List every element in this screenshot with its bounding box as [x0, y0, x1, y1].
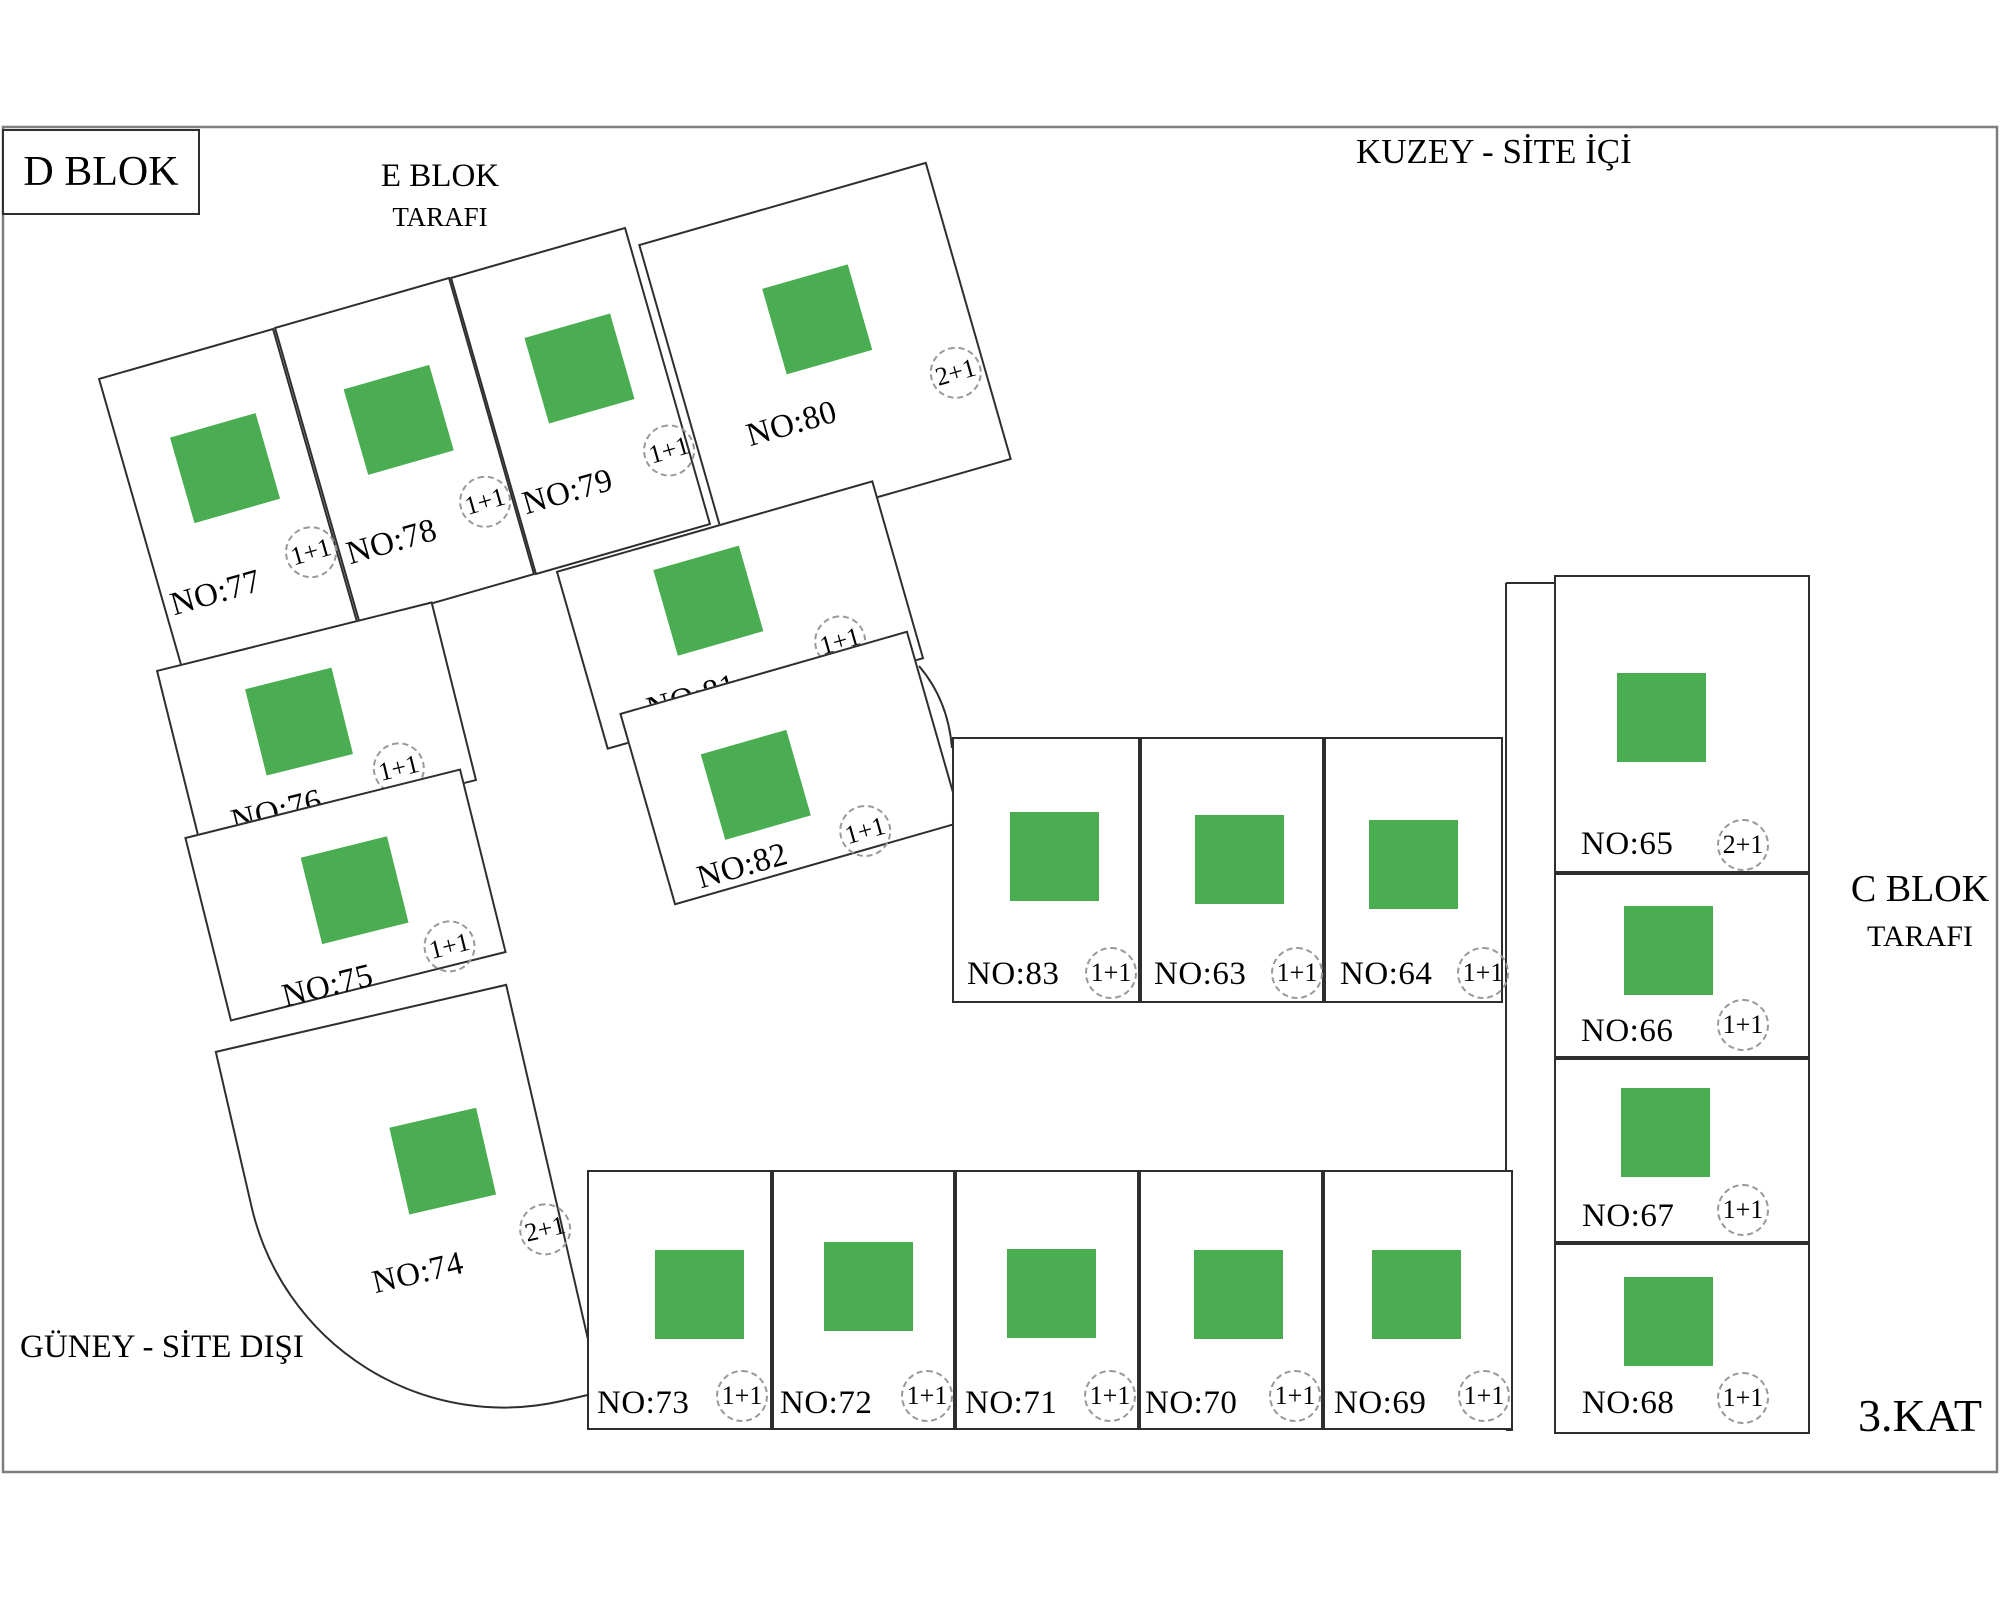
unit-availability-square: [389, 1108, 496, 1215]
c-block-line1: C BLOK: [1840, 868, 2000, 912]
unit-availability-square: [300, 836, 408, 944]
unit-type-badge: 1+1: [1458, 1370, 1510, 1422]
unit-availability-square: [701, 730, 811, 840]
d-block-label-box: D BLOK: [2, 129, 200, 215]
unit-no-73[interactable]: NO:731+1: [587, 1170, 772, 1430]
unit-availability-square: [1624, 1277, 1713, 1366]
floor-label: 3.KAT: [1858, 1390, 1982, 1443]
unit-type-badge: 1+1: [716, 1370, 768, 1422]
unit-no-72[interactable]: NO:721+1: [772, 1170, 955, 1430]
unit-number-label: NO:68: [1582, 1387, 1674, 1420]
e-block-label: E BLOK TARAFI: [340, 158, 540, 233]
unit-no-71[interactable]: NO:711+1: [955, 1170, 1139, 1430]
unit-no-70[interactable]: NO:701+1: [1139, 1170, 1323, 1430]
unit-number-label: NO:69: [1334, 1387, 1426, 1420]
unit-availability-square: [343, 365, 453, 475]
unit-number-label: NO:75: [278, 959, 376, 1013]
unit-no-74[interactable]: NO:742+1: [215, 984, 602, 1461]
unit-availability-square: [1621, 1088, 1710, 1177]
unit-no-63[interactable]: NO:631+1: [1140, 737, 1324, 1003]
unit-availability-square: [1194, 1250, 1283, 1339]
unit-type-badge: 1+1: [1084, 1370, 1136, 1422]
unit-number-label: NO:82: [694, 838, 792, 895]
unit-number-label: NO:72: [780, 1387, 872, 1420]
unit-number-label: NO:71: [965, 1387, 1057, 1420]
unit-number-label: NO:74: [369, 1247, 466, 1300]
unit-number-label: NO:73: [597, 1387, 689, 1420]
unit-type-badge: 1+1: [1457, 947, 1509, 999]
unit-no-66[interactable]: NO:661+1: [1554, 873, 1810, 1058]
service-strip-lines: [1506, 583, 1554, 1430]
unit-no-64[interactable]: NO:641+1: [1324, 737, 1503, 1003]
unit-availability-square: [1010, 812, 1099, 901]
unit-type-badge: 2+1: [514, 1198, 576, 1260]
unit-availability-square: [1624, 906, 1713, 995]
unit-availability-square: [245, 667, 353, 775]
unit-no-69[interactable]: NO:691+1: [1323, 1170, 1513, 1430]
unit-no-68[interactable]: NO:681+1: [1554, 1243, 1810, 1434]
unit-availability-square: [1007, 1249, 1096, 1338]
c-block-line2: TARAFI: [1840, 920, 2000, 955]
unit-number-label: NO:77: [166, 565, 264, 622]
unit-availability-square: [655, 1250, 744, 1339]
unit-number-label: NO:79: [518, 464, 616, 521]
south-side-label: GÜNEY - SİTE DIŞI: [20, 1329, 304, 1367]
unit-type-badge: 1+1: [417, 915, 480, 978]
unit-no-65[interactable]: NO:652+1: [1554, 575, 1810, 873]
unit-type-badge: 1+1: [1085, 947, 1137, 999]
e-block-line1: E BLOK: [340, 158, 540, 196]
unit-number-label: NO:63: [1154, 958, 1246, 991]
unit-type-badge: 2+1: [924, 341, 988, 405]
unit-availability-square: [824, 1242, 913, 1331]
unit-availability-square: [169, 413, 279, 523]
unit-type-badge: 1+1: [1717, 999, 1769, 1051]
unit-type-badge: 2+1: [1717, 819, 1769, 871]
unit-number-label: NO:80: [743, 396, 841, 453]
unit-no-83[interactable]: NO:831+1: [952, 737, 1140, 1003]
c-block-label: C BLOK TARAFI: [1840, 868, 2000, 954]
unit-no-67[interactable]: NO:671+1: [1554, 1058, 1810, 1243]
unit-type-badge: 1+1: [1717, 1184, 1769, 1236]
unit-number-label: NO:83: [967, 958, 1059, 991]
north-side-label: KUZEY - SİTE İÇİ: [1356, 132, 1632, 172]
e-block-line2: TARAFI: [340, 202, 540, 233]
unit-number-label: NO:70: [1145, 1387, 1237, 1420]
unit-type-badge: 1+1: [901, 1370, 953, 1422]
unit-availability-square: [762, 264, 872, 374]
unit-type-badge: 1+1: [1269, 1370, 1321, 1422]
unit-availability-square: [653, 546, 763, 656]
unit-availability-square: [524, 313, 634, 423]
unit-number-label: NO:64: [1340, 958, 1432, 991]
unit-type-badge: 1+1: [1271, 947, 1323, 999]
unit-availability-square: [1195, 815, 1284, 904]
d-block-label: D BLOK: [23, 148, 178, 196]
unit-number-label: NO:67: [1582, 1200, 1674, 1233]
unit-availability-square: [1617, 673, 1706, 762]
floor-plan: D BLOK E BLOK TARAFI KUZEY - SİTE İÇİ C …: [0, 0, 2000, 1600]
unit-number-label: NO:78: [342, 514, 440, 571]
unit-number-label: NO:66: [1581, 1015, 1673, 1048]
unit-availability-square: [1369, 820, 1458, 909]
unit-availability-square: [1372, 1250, 1461, 1339]
unit-type-badge: 1+1: [1717, 1372, 1769, 1424]
unit-type-badge: 1+1: [833, 799, 897, 863]
unit-number-label: NO:65: [1581, 828, 1673, 861]
